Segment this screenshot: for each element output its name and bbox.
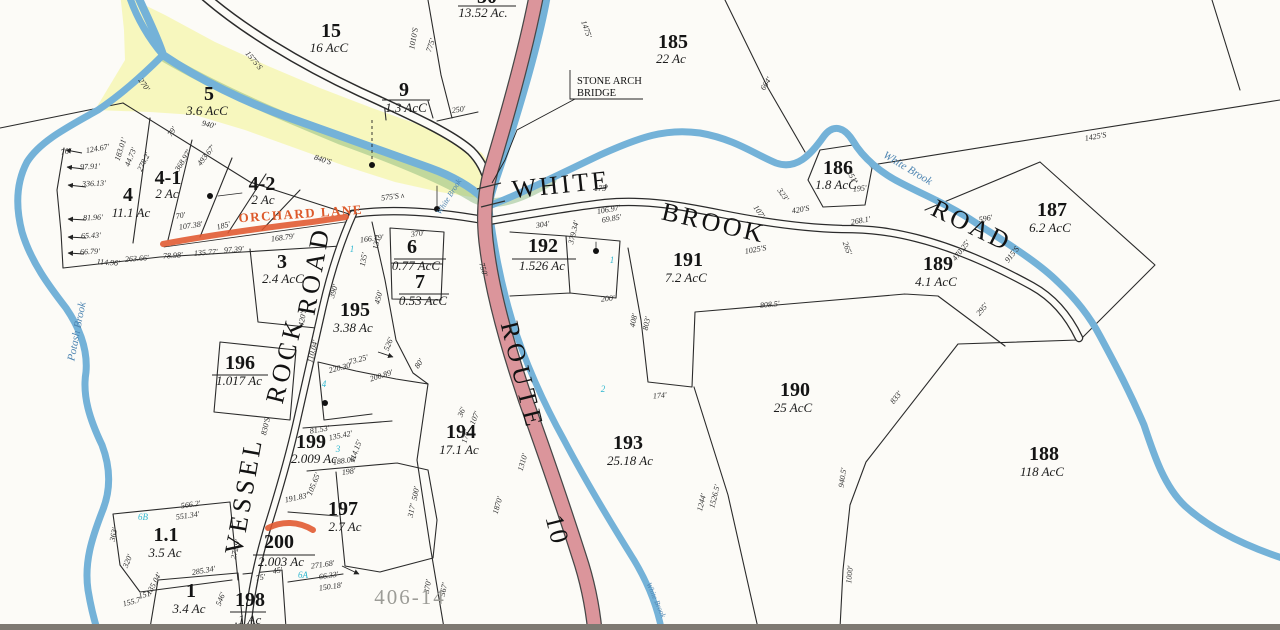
teal-reference-marker: 6B	[138, 512, 149, 522]
parcel-acreage: 13.52 Ac.	[458, 5, 507, 20]
parcel-number: 190	[780, 379, 810, 401]
parcel-acreage: 11.1 Ac	[112, 205, 151, 220]
parcel-number: 3	[277, 251, 287, 273]
tax-map-page: 3013.52 Ac.1516 AcC53.6 AcC91.3 AcC18522…	[0, 0, 1280, 630]
building-dot	[369, 162, 375, 168]
parcel-number: 5	[204, 83, 214, 105]
parcel-number: 185	[658, 31, 688, 53]
parcel-acreage: 2.7 Ac	[329, 519, 362, 534]
survey-distance-label: 114.96'	[96, 257, 120, 268]
survey-distance-label: 174'	[653, 390, 668, 400]
parcel-acreage: 3.6 AcC	[185, 103, 228, 118]
survey-distance-label: 200'	[601, 293, 616, 303]
parcel-number: 7	[415, 271, 425, 293]
survey-distance-label: 263.66'	[125, 253, 150, 264]
parcel-acreage: 25 AcC	[774, 400, 813, 415]
building-dot	[322, 400, 328, 406]
parcel-acreage: 2 Ac	[251, 192, 274, 207]
survey-distance-label: 135.77'	[194, 247, 219, 258]
teal-reference-marker: 4	[322, 379, 327, 389]
parcel-number: 1	[186, 580, 196, 602]
parcel-acreage: 7.2 AcC	[665, 270, 707, 285]
survey-distance-label: 97.39'	[224, 244, 245, 254]
building-dot	[593, 248, 599, 254]
survey-distance-label: 66.79'	[80, 247, 100, 257]
parcel-number: 197	[328, 498, 358, 520]
parcel-number: 188	[1029, 443, 1059, 465]
teal-reference-marker: 6A	[298, 570, 309, 580]
parcel-number: 196	[225, 352, 255, 374]
survey-distance-label: 78.98'	[163, 250, 184, 260]
survey-distance-label: 70'	[175, 210, 186, 221]
parcel-number: 1.1	[154, 524, 179, 546]
teal-reference-marker: 1	[350, 244, 355, 254]
parcel-number: 200	[264, 531, 294, 553]
survey-distance-label: 81.96'	[83, 213, 103, 223]
sheet-reference: 406-14	[374, 585, 446, 609]
parcel-acreage: 1.526 Ac	[519, 258, 565, 273]
parcel-acreage: 25.18 Ac	[607, 453, 653, 468]
parcel-acreage: 3.4 Ac	[172, 601, 206, 616]
parcel-number: 189	[923, 253, 953, 275]
map-bottom-edge	[0, 624, 1280, 630]
parcel-number: 9	[399, 79, 409, 101]
stone-arch-bridge-label-line1: STONE ARCH	[577, 76, 642, 87]
survey-distance-label: 75'	[255, 572, 266, 583]
parcel-number: 187	[1037, 199, 1067, 221]
parcel-number: 198	[235, 589, 265, 611]
teal-reference-marker: 2	[601, 384, 606, 394]
parcel-number: 192	[528, 235, 558, 257]
survey-distance-label: 97.91'	[80, 162, 100, 172]
survey-distance-label: 65.43'	[81, 231, 101, 241]
survey-distance-label: 195'	[853, 183, 868, 193]
parcel-acreage: 3.38 Ac	[332, 320, 373, 335]
parcel-acreage: 16 AcC	[310, 40, 349, 55]
parcel-acreage: 22 Ac	[656, 51, 686, 66]
parcel-acreage: 1.017 Ac	[216, 373, 262, 388]
teal-reference-marker: 3	[335, 444, 341, 454]
survey-distance-label: 76'	[60, 146, 71, 157]
parcel-acreage: 4.1 AcC	[915, 274, 957, 289]
survey-distance-label: 45'	[272, 565, 283, 576]
parcel-number: 193	[613, 432, 643, 454]
stone-arch-bridge-label-line2: BRIDGE	[577, 88, 616, 99]
parcel-number: 195	[340, 299, 370, 321]
building-dot	[207, 193, 213, 199]
parcel-number: 4	[123, 184, 133, 206]
parcel-acreage: 0.53 AcC	[399, 293, 447, 308]
teal-reference-marker: 1	[610, 255, 615, 265]
parcel-acreage: 118 AcC	[1020, 464, 1064, 479]
parcel-acreage: 6.2 AcC	[1029, 220, 1071, 235]
parcel-acreage: 2.009 Ac	[291, 451, 337, 466]
parcel-number: 191	[673, 249, 703, 271]
parcel-acreage: 3.5 Ac	[148, 545, 182, 560]
parcel-number: 6	[407, 236, 417, 258]
parcel-number: 15	[321, 20, 341, 42]
parcel-acreage: 17.1 Ac	[439, 442, 479, 457]
survey-distance-label: 336.13'	[81, 179, 106, 189]
parcel-map: 3013.52 Ac.1516 AcC53.6 AcC91.3 AcC18522…	[0, 0, 1280, 630]
parcel-acreage: 2 Ac	[155, 186, 178, 201]
survey-distance-label: 1000'	[844, 565, 855, 584]
parcel-acreage: 1.3 AcC	[385, 100, 427, 115]
